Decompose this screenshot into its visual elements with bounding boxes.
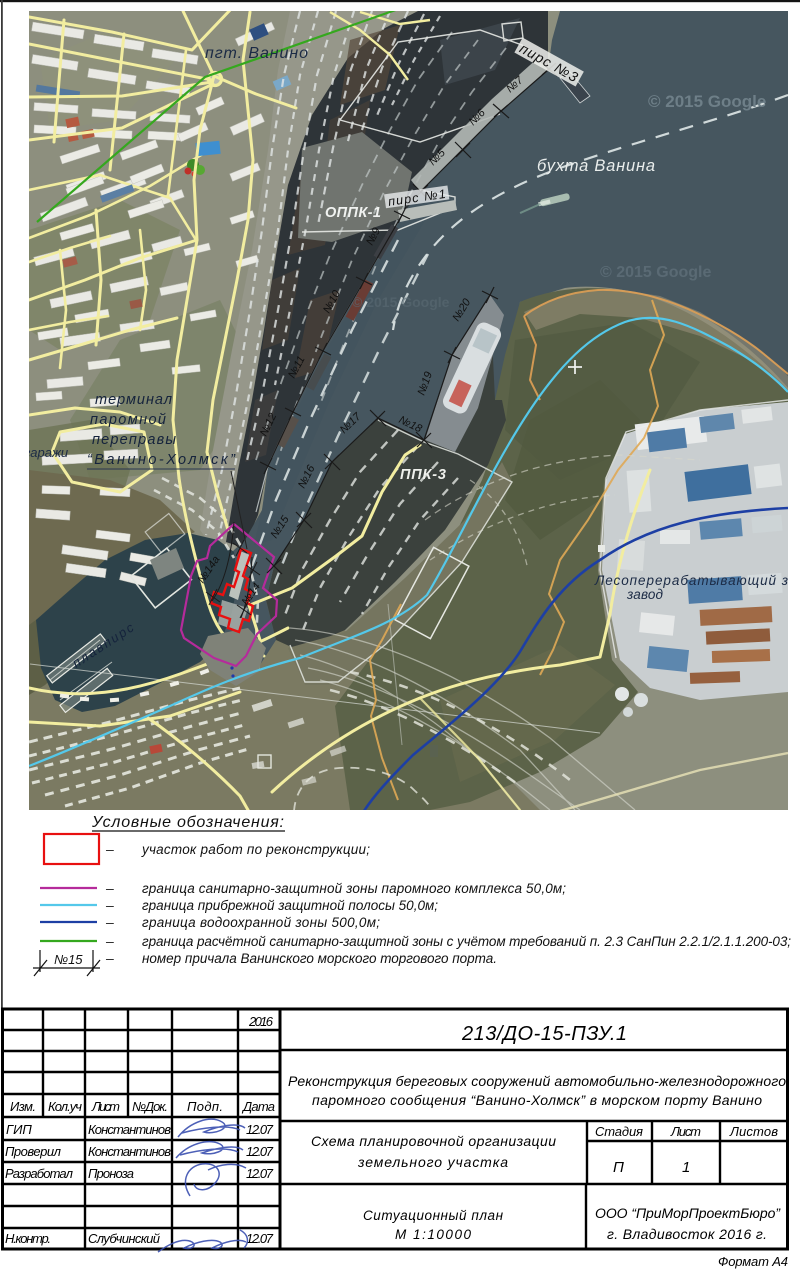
- svg-text:Листов: Листов: [729, 1124, 778, 1139]
- svg-text:Проверил: Проверил: [5, 1144, 62, 1159]
- svg-text:Реконструкция береговых сооруж: Реконструкция береговых сооружений автом…: [288, 1073, 786, 1089]
- svg-text:–: –: [105, 950, 114, 966]
- svg-text:Ситуационный план: Ситуационный план: [363, 1208, 504, 1223]
- svg-text:г. Владивосток 2016 г.: г. Владивосток 2016 г.: [607, 1226, 767, 1242]
- svg-text:12.07: 12.07: [246, 1122, 274, 1137]
- svg-text:© 2015 Google: © 2015 Google: [352, 294, 450, 310]
- svg-text:паромной: паромной: [90, 412, 166, 428]
- svg-text:Изм.: Изм.: [10, 1099, 36, 1114]
- svg-text:Условные обозначения:: Условные обозначения:: [91, 814, 284, 831]
- svg-text:Формат А4: Формат А4: [718, 1254, 788, 1269]
- svg-text:ППК-3: ППК-3: [400, 467, 446, 483]
- svg-text:“Ванино-Холмск”: “Ванино-Холмск”: [87, 452, 236, 468]
- svg-text:Схема планировочной организаци: Схема планировочной организации: [311, 1133, 556, 1149]
- svg-text:12.07: 12.07: [246, 1144, 274, 1159]
- svg-text:Лист: Лист: [91, 1099, 120, 1114]
- svg-text:терминал: терминал: [95, 392, 172, 408]
- svg-text:12.07: 12.07: [246, 1231, 274, 1246]
- svg-text:ОППК-1: ОППК-1: [325, 205, 381, 221]
- svg-text:номер причала Ванинского морск: номер причала Ванинского морского торгов…: [142, 951, 497, 966]
- svg-text:гаражи: гаражи: [24, 445, 68, 460]
- svg-text:паромного сообщения “Ванино-Хо: паромного сообщения “Ванино-Холмск” в мо…: [312, 1092, 762, 1108]
- svg-text:переправы: переправы: [92, 432, 176, 448]
- svg-text:Лесоперерабатывающий з: Лесоперерабатывающий з: [594, 573, 788, 588]
- svg-text:Проноза: Проноза: [88, 1166, 134, 1181]
- svg-text:Кол.уч: Кол.уч: [48, 1099, 82, 1114]
- svg-text:Дата: Дата: [241, 1099, 275, 1114]
- svg-text:© 2015 Google: © 2015 Google: [600, 264, 711, 281]
- svg-text:граница водоохранной зоны 500,: граница водоохранной зоны 500,0м;: [142, 915, 380, 930]
- svg-text:Слубчинский: Слубчинский: [88, 1231, 160, 1246]
- svg-text:бухта Ванина: бухта Ванина: [537, 157, 655, 175]
- svg-text:завод: завод: [626, 587, 664, 602]
- svg-text:213/ДО-15-ПЗУ.1: 213/ДО-15-ПЗУ.1: [461, 1023, 627, 1045]
- svg-text:№15: №15: [54, 952, 83, 967]
- svg-text:2016: 2016: [248, 1014, 274, 1029]
- svg-text:Стадия: Стадия: [595, 1124, 643, 1139]
- svg-text:граница расчётной санитарно-за: граница расчётной санитарно-защитной зон…: [142, 934, 791, 949]
- svg-text:ГИП: ГИП: [6, 1122, 32, 1137]
- svg-text:участок работ по реконструкции: участок работ по реконструкции;: [141, 842, 370, 857]
- svg-text:–: –: [105, 933, 114, 949]
- svg-text:Константинов: Константинов: [88, 1122, 171, 1137]
- svg-text:ООО “ПриМорПроектБюро”: ООО “ПриМорПроектБюро”: [595, 1205, 781, 1221]
- svg-text:Н.контр.: Н.контр.: [5, 1231, 51, 1246]
- svg-text:Подп.: Подп.: [187, 1099, 223, 1114]
- svg-text:П: П: [613, 1159, 624, 1176]
- svg-text:12.07: 12.07: [246, 1166, 274, 1181]
- svg-text:Константинов: Константинов: [88, 1144, 171, 1159]
- svg-text:© 2015 Google: © 2015 Google: [648, 92, 766, 111]
- svg-text:1: 1: [682, 1159, 690, 1176]
- svg-text:Лист: Лист: [670, 1124, 701, 1139]
- svg-text:земельного участка: земельного участка: [357, 1154, 508, 1170]
- svg-text:граница санитарно-защитной зон: граница санитарно-защитной зоны паромног…: [142, 881, 566, 896]
- svg-text:Разработал: Разработал: [5, 1166, 74, 1181]
- svg-text:–: –: [105, 880, 114, 896]
- svg-text:пгт. Ванино: пгт. Ванино: [205, 45, 308, 62]
- svg-text:–: –: [105, 914, 114, 930]
- svg-text:–: –: [105, 841, 114, 857]
- svg-text:граница прибрежной защитной по: граница прибрежной защитной полосы 50,0м…: [142, 898, 438, 913]
- svg-text:№Док.: №Док.: [132, 1099, 168, 1114]
- svg-text:–: –: [105, 897, 114, 913]
